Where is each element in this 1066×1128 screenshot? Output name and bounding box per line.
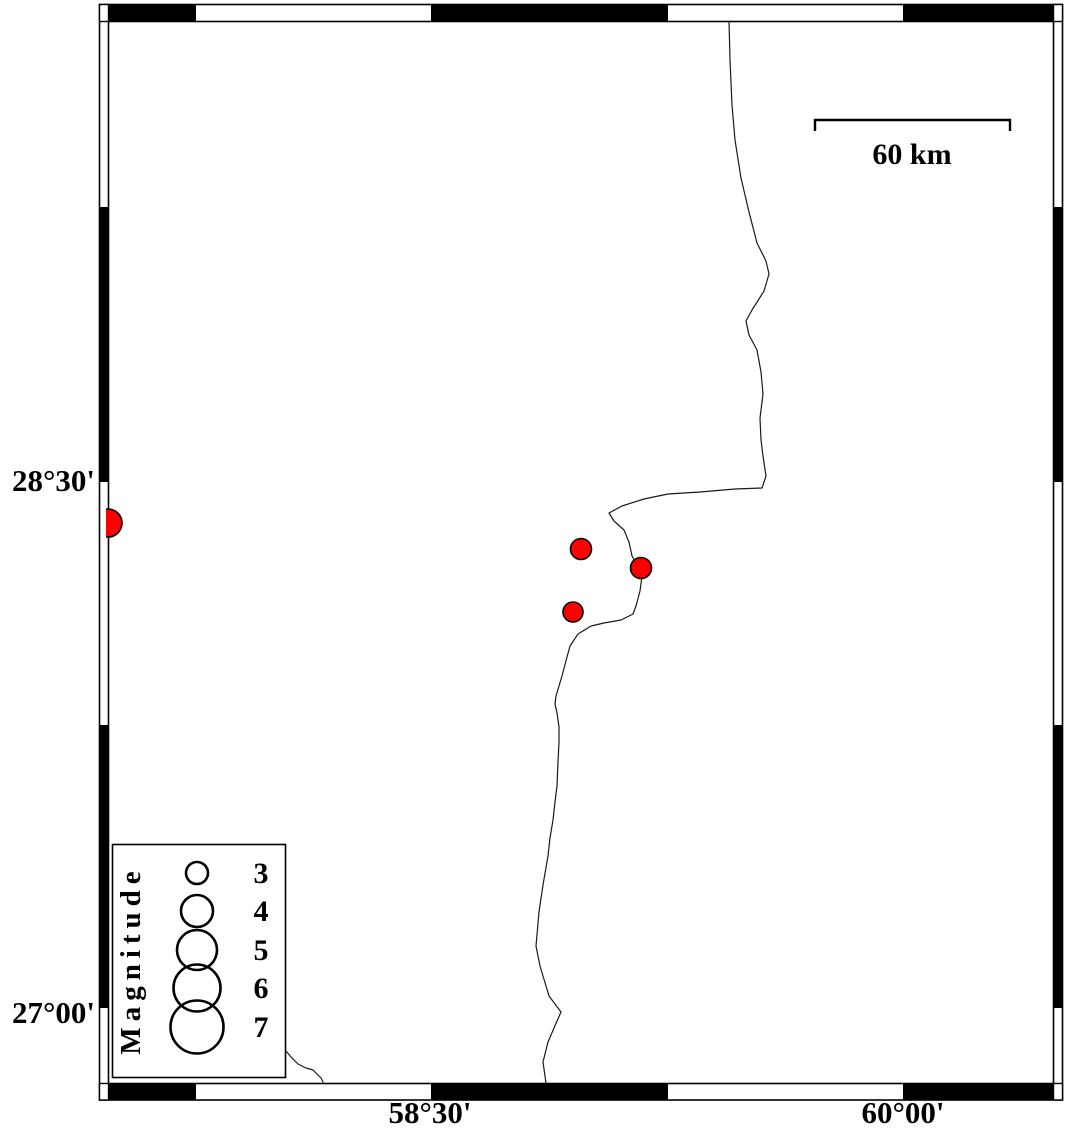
legend-title: Magnitude: [115, 865, 147, 1054]
seismicity-map: 60 km 28°30' 27°00' 58°30' 60°00' Magnit…: [0, 0, 1066, 1128]
legend-value-3: 3: [254, 857, 269, 890]
axis-label-lon-60-00: 60°00': [861, 1095, 944, 1128]
legend-value-5: 5: [254, 934, 269, 967]
axis-label-lat-27-00: 27°00': [12, 995, 95, 1030]
frame-corner-bottom-right: [1054, 1084, 1063, 1101]
frame-corner-bottom-left: [100, 1084, 109, 1101]
legend-value-4: 4: [254, 895, 269, 928]
map-canvas: 60 km 28°30' 27°00' 58°30' 60°00' Magnit…: [0, 0, 1066, 1128]
frame-corner-top-left: [100, 5, 109, 22]
magnitude-legend: Magnitude 34567: [113, 845, 286, 1078]
epicenter-dot: [94, 509, 122, 537]
legend-value-6: 6: [254, 972, 269, 1005]
coastline-segment-near-legend: [286, 1051, 323, 1082]
frame-corner-top-right: [1054, 5, 1063, 22]
axis-label-lon-58-30: 58°30': [388, 1095, 471, 1128]
epicenter-dots: [94, 509, 652, 622]
epicenter-dot: [571, 539, 592, 560]
scale-bar: 60 km: [815, 120, 1010, 171]
scale-bar-label: 60 km: [872, 138, 951, 171]
epicenter-dot: [563, 602, 583, 622]
epicenter-dot: [631, 558, 652, 579]
axis-label-lat-28-30: 28°30': [12, 463, 95, 498]
legend-value-7: 7: [254, 1011, 269, 1044]
